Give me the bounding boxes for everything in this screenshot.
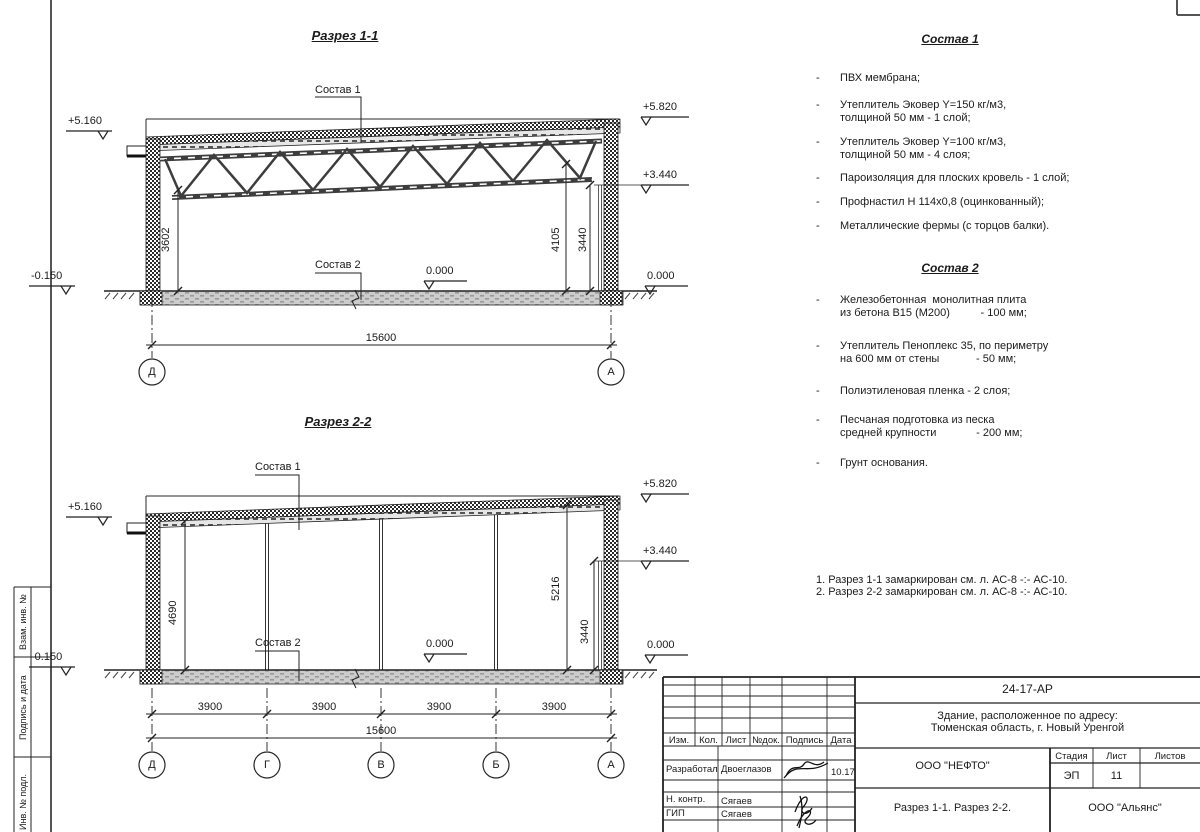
section1-composition1-label: Состав 1 (315, 84, 361, 96)
list-item: - Утеплитель Эковер Y=100 кг/м3, толщино… (812, 136, 1182, 161)
bullet: - (816, 172, 820, 185)
section1-elev-floor-zero: 0.000 (426, 265, 454, 277)
section2-elev-right-top: +5.820 (643, 478, 677, 490)
item-text-2: средней крупности - 200 мм; (840, 427, 1182, 440)
section2-dim-bay-3: 3900 (409, 701, 469, 713)
bullet: - (816, 340, 820, 353)
section2-composition1-label: Состав 1 (255, 461, 301, 473)
titleblock-stage-label: Стадия (1050, 751, 1093, 763)
bullet: - (816, 294, 820, 307)
list-item: - Грунт основания. (812, 457, 1182, 470)
titleblock-ncontrol-label: Н. контр. (666, 794, 705, 806)
section1-elev-right-top: +5.820 (643, 101, 677, 113)
margin-label-vzam: Взам. инв. № (17, 594, 29, 650)
titleblock-project-line2: Тюменская область, г. Новый Уренгой (855, 722, 1200, 734)
item-text-2: на 600 мм от стены - 50 мм; (840, 353, 1182, 366)
list-item: - Металлические фермы (с торцов балки). (812, 220, 1182, 233)
item-text: Грунт основания. (840, 457, 1182, 470)
titleblock-col-izm: Изм. (663, 735, 695, 747)
item-text-2: толщиной 50 мм - 4 слоя; (840, 149, 1182, 162)
bullet: - (816, 196, 820, 209)
section1-title: Разрез 1-1 (300, 30, 390, 42)
section2-axis-bubble-v: В (368, 759, 394, 771)
bullet: - (816, 220, 820, 233)
list-item: - Железобетонная монолитная плита из бет… (812, 294, 1182, 319)
section2-dim-right-height-inner: 3440 (579, 620, 591, 644)
section1-composition2-label: Состав 2 (315, 259, 361, 271)
section2-axis-bubble-g: Г (254, 759, 280, 771)
section2-dim-left-height: 4690 (167, 601, 179, 625)
drawing-sheet: Разрез 1-1 Состав 1 Состав 2 +5.160 -0.1… (0, 0, 1200, 832)
section1-elev-left-bottom: -0.150 (31, 270, 62, 282)
section2-elev-left-bottom: -0.150 (31, 651, 62, 663)
section2-elev-right-zero: 0.000 (647, 639, 675, 651)
list-item: - Полиэтиленовая пленка - 2 слоя; (812, 385, 1182, 398)
titleblock-col-list: Лист (722, 735, 750, 747)
titleblock-gip-label: ГИП (666, 808, 685, 820)
section2-dim-bay-2: 3900 (294, 701, 354, 713)
bullet: - (816, 136, 820, 149)
titleblock-developed-name: Двоеглазов (721, 764, 772, 776)
bullet: - (816, 414, 820, 427)
note-line-1: 1. Разрез 1-1 замаркирован см. л. АС-8 -… (816, 574, 1067, 586)
item-text: Профнастил Н 114х0,8 (оцинкованный); (840, 196, 1182, 209)
list-item: - Профнастил Н 114х0,8 (оцинкованный); (812, 196, 1182, 209)
titleblock-project-line1: Здание, расположенное по адресу: (855, 710, 1200, 722)
titleblock-contractor-company: ООО "Альянс" (1050, 802, 1200, 814)
bullet: - (816, 457, 820, 470)
section2-axis-bubble-d: Д (139, 759, 165, 771)
titleblock-col-podpis: Подпись (782, 735, 827, 747)
composition1-title: Состав 1 (895, 33, 1005, 45)
margin-label-inv: Инв. № подл. (17, 774, 29, 830)
section2-dim-right-height-outer: 5216 (550, 577, 562, 601)
section1-elev-right-zero: 0.000 (647, 270, 675, 282)
section1-elev-right-mid: +3.440 (643, 169, 677, 181)
signature-marks (784, 762, 828, 828)
titleblock-stage-value: ЭП (1050, 770, 1093, 782)
titleblock-sheet-value: 11 (1093, 770, 1140, 782)
titleblock-gip-name: Сягаев (721, 809, 752, 821)
section1-axis-bubble-d: Д (139, 366, 165, 378)
section2-elev-right-mid: +3.440 (643, 545, 677, 557)
titleblock-ncontrol-name: Сягаев (721, 796, 752, 808)
bullet: - (816, 99, 820, 112)
bullet: - (816, 72, 820, 85)
section2-axis-bubble-b: Б (483, 759, 509, 771)
item-text: Песчаная подготовка из песка (840, 414, 1182, 427)
item-text: ПВХ мембрана; (840, 72, 1182, 85)
list-item: - Пароизоляция для плоских кровель - 1 с… (812, 172, 1182, 185)
section2-axis-bubble-a: А (598, 759, 624, 771)
list-item: - Утеплитель Пеноплекс 35, по периметру … (812, 340, 1182, 365)
section2-dim-bay-1: 3900 (180, 701, 240, 713)
note-line-2: 2. Разрез 2-2 замаркирован см. л. АС-8 -… (816, 586, 1067, 598)
item-text: Утеплитель Пеноплекс 35, по периметру (840, 340, 1182, 353)
section1-axis-bubble-a: А (598, 366, 624, 378)
titleblock-sheets-label: Листов (1140, 751, 1200, 763)
section1-dim-span: 15600 (351, 332, 411, 344)
list-item: - ПВХ мембрана; (812, 72, 1182, 85)
titleblock-developed-date: 10.17 (831, 767, 855, 779)
margin-label-podpis: Подпись и дата (17, 675, 29, 740)
section1-dim-left-height: 3602 (160, 228, 172, 252)
item-text: Металлические фермы (с торцов балки). (840, 220, 1182, 233)
section2-composition2-label: Состав 2 (255, 637, 301, 649)
item-text: Полиэтиленовая пленка - 2 слоя; (840, 385, 1182, 398)
item-text: Утеплитель Эковер Y=150 кг/м3, (840, 99, 1182, 112)
list-item: - Песчаная подготовка из песка средней к… (812, 414, 1182, 439)
titleblock-col-ndok: №док. (750, 735, 782, 747)
titleblock-developed-label: Разработал (666, 764, 718, 776)
section2-elev-floor-zero: 0.000 (426, 638, 454, 650)
bullet: - (816, 385, 820, 398)
section2-title: Разрез 2-2 (293, 416, 383, 428)
section1-dim-right-height-inner: 3440 (577, 228, 589, 252)
item-text: Железобетонная монолитная плита (840, 294, 1182, 307)
titleblock-sheet-caption: Разрез 1-1. Разрез 2-2. (855, 802, 1050, 814)
section2-dim-bay-4: 3900 (524, 701, 584, 713)
item-text: Пароизоляция для плоских кровель - 1 сло… (840, 172, 1182, 185)
composition2-title: Состав 2 (895, 262, 1005, 274)
titleblock-sheet-label: Лист (1093, 751, 1140, 763)
item-text-2: из бетона В15 (М200) - 100 мм; (840, 307, 1182, 320)
section1-dim-right-height-outer: 4105 (550, 228, 562, 252)
titleblock-col-kol: Кол. (695, 735, 722, 747)
item-text: Утеплитель Эковер Y=100 кг/м3, (840, 136, 1182, 149)
item-text-2: толщиной 50 мм - 1 слой; (840, 112, 1182, 125)
section1-elev-left-top: +5.160 (68, 115, 102, 127)
titleblock-col-data: Дата (827, 735, 855, 747)
list-item: - Утеплитель Эковер Y=150 кг/м3, толщино… (812, 99, 1182, 124)
section2-dim-span: 15600 (351, 725, 411, 737)
section2-elev-left-top: +5.160 (68, 501, 102, 513)
titleblock-document-code: 24-17-АР (855, 683, 1200, 695)
titleblock-designer-company: ООО "НЕФТО" (855, 760, 1050, 772)
